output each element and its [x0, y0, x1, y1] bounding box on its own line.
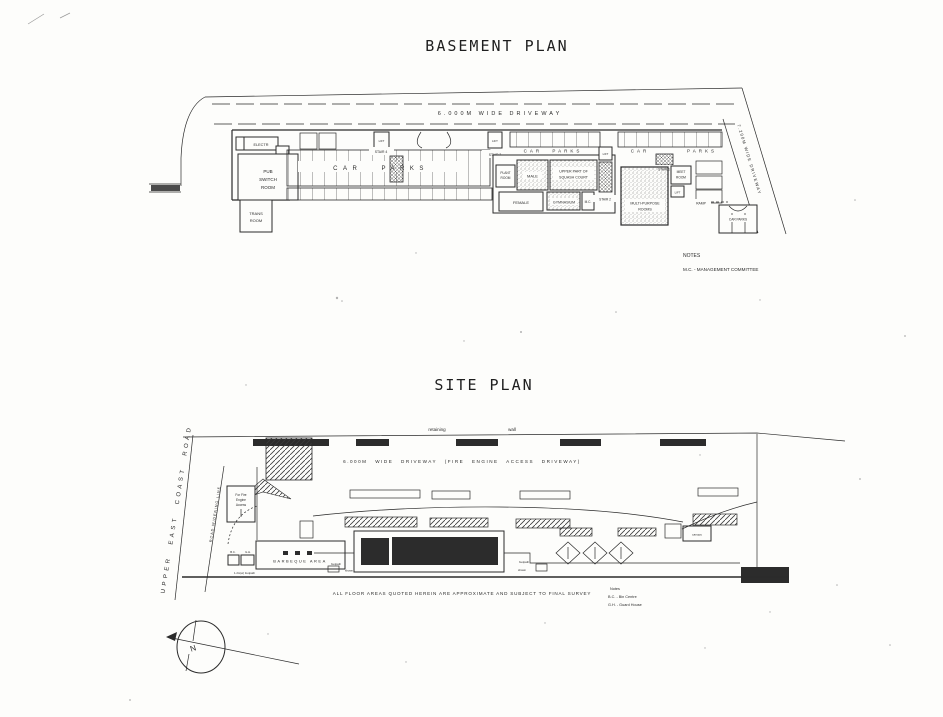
planter-marks [568, 547, 621, 559]
transformer-room-label-1: TRANS [249, 211, 263, 216]
stair-2-flight [599, 162, 612, 192]
retaining-label: retaining [428, 427, 446, 432]
lift-2-label: LIFT [603, 152, 609, 156]
small-structure [300, 521, 313, 538]
canopy-label: canopy [692, 533, 702, 537]
hatched-widening-strip [266, 438, 312, 480]
column-curves [417, 132, 451, 148]
site-plan-title: SITE PLAN [434, 376, 533, 394]
north-arrow-compass: N [166, 620, 299, 673]
wall-segment [456, 439, 498, 446]
driveway-boundary-line [205, 88, 742, 97]
compass-arrowhead-icon [166, 632, 177, 641]
small-structure [665, 524, 681, 538]
multi-purpose-label-1: MULTI-PURPOSE [630, 202, 660, 206]
stair-4-label: STAIR 4 [375, 150, 388, 154]
car-right-label: CAR [631, 149, 650, 154]
transformer-room [240, 200, 272, 232]
squash-court-label-2: SQUASH COURT [559, 176, 589, 180]
car-parks-left-label: CAR PARKS [333, 166, 429, 172]
compass-circle [177, 621, 225, 673]
barbeque-area-label: BARBEQUE AREA [273, 559, 327, 564]
guard-house-box [241, 555, 254, 565]
scanned-page: BASEMENT PLAN 6.000M WIDE DRIVEWAY 7.200… [0, 0, 943, 717]
shown-word: shown [345, 569, 354, 573]
mc-room-label: M.C. [585, 200, 592, 204]
survey-note: ALL FLOOR AREAS QUOTED HEREIN ARE APPROX… [333, 591, 592, 596]
stall-box [696, 176, 722, 189]
stair-4-flight [390, 156, 403, 182]
upper-stall-box [300, 133, 317, 149]
electrical-room-label: ELECTR [254, 143, 269, 147]
hatched-roof-strip [430, 518, 488, 527]
squash-court-label-1: UPPER PART OF [559, 170, 588, 174]
wall-segment [660, 439, 706, 446]
basement-plan-title: BASEMENT PLAN [425, 37, 568, 55]
car-parks-row-right [618, 132, 722, 147]
hatched-roof-strip [345, 517, 417, 527]
compass-north-label: N [189, 643, 197, 653]
female-room-label: FEMALE [513, 200, 529, 205]
wall-label: wall [508, 427, 516, 432]
architectural-drawing: BASEMENT PLAN 6.000M WIDE DRIVEWAY 7.200… [0, 0, 943, 717]
bin-centre-abbr: B.C. [230, 550, 236, 554]
shown-word: shown [518, 568, 527, 572]
site-driveway-label: 6.000M WIDE DRIVEWAY (FIRE ENGINE ACCESS… [343, 459, 581, 464]
transformer-room-label-2: ROOM [250, 218, 262, 223]
hatched-roof-strip [560, 528, 592, 536]
car-parks-mid-label: CAR PARKS [524, 149, 583, 154]
legend-bin-centre: B.C. - Bin Centre [608, 595, 637, 599]
multi-purpose-label-2: ROOMS [638, 208, 652, 212]
upper-block-outline [698, 488, 738, 496]
site-plan: SITE PLAN retaining wall 6.000M WIDE DRI… [161, 376, 845, 673]
compass-needle-line [167, 637, 299, 664]
upper-block-outline [520, 491, 570, 499]
boundary-wall-corner [741, 567, 789, 583]
lift-4-label: LIFT [379, 139, 385, 143]
basement-notes: NOTES M.C. - MANAGEMENT COMMITTEE [683, 253, 758, 272]
entrance-footpath-label: 1.2m(w) footpath [234, 571, 255, 575]
car-parks-row-mid [510, 132, 600, 147]
site-legend: Notes B.C. - Bin Centre G.H. - Guard Hou… [608, 587, 642, 607]
scan-scratch [28, 13, 70, 24]
legend-guard-house: G.H. - Guard House [608, 603, 642, 607]
fire-engine-label-2: Engine [236, 498, 246, 502]
plant-room-label-1: PLANT [500, 171, 510, 175]
legend-heading: Notes [610, 587, 620, 591]
small-duct-box [236, 137, 244, 150]
meeting-room-label-1: MEET [677, 170, 686, 174]
car-parks-row-lower [287, 188, 492, 200]
hatched-roof-strip [618, 528, 656, 536]
plant-room-label-2: ROOM [501, 176, 511, 180]
wall-segment [560, 439, 601, 446]
bbq-pit [295, 551, 300, 555]
pub-switch-room-label-1: PUB [263, 169, 272, 174]
basement-driveway-label: 6.000M WIDE DRIVEWAY [438, 111, 563, 117]
bin-centre-box [228, 555, 239, 565]
footpath-symbol [536, 564, 547, 571]
wall-segment [356, 439, 389, 446]
guard-house-abbr: G.H. [245, 550, 251, 554]
hatched-roof-strip [516, 519, 570, 528]
road-widening-label: ROAD WIDENING LINE [209, 486, 222, 543]
upper-stall-box [319, 133, 336, 149]
basement-structure: ELECTR LIFT PUB SWITCH ROOM TRANS ROOM C… [232, 130, 757, 233]
left-road-wall [151, 185, 180, 191]
bbq-pit [283, 551, 288, 555]
basement-plan: BASEMENT PLAN 6.000M WIDE DRIVEWAY 7.200… [149, 37, 786, 272]
road-edge: UPPER EAST COAST ROAD ROAD WIDENING LINE… [161, 424, 312, 600]
footpath-note-right: footpath shown [518, 560, 547, 572]
stair-2-label: STAIR 2 [599, 198, 611, 202]
side-driveway-label: 7.200M WIDE DRIVEWAY [736, 124, 762, 195]
gymnasium-label: GYMNASIUM [553, 201, 575, 205]
corner-car-parks-label: CAR PARKS [729, 218, 747, 222]
swimming-pool-small [361, 538, 389, 565]
swimming-pool-main [392, 537, 498, 565]
stall-box [696, 161, 722, 174]
road-name-label: UPPER EAST COAST ROAD [161, 424, 194, 593]
bbq-pit [307, 551, 312, 555]
meeting-room-label-2: ROOM [676, 176, 686, 180]
upper-block-outline [432, 491, 470, 499]
mc-definition: M.C. - MANAGEMENT COMMITTEE [683, 267, 758, 272]
notes-heading: NOTES [683, 253, 701, 259]
hatched-roof-strip [693, 514, 737, 525]
driveway-left-curve [181, 97, 205, 186]
ramp-label: RAMP [696, 202, 707, 206]
upper-block-outline [350, 490, 420, 498]
lift-3-label: LIFT [492, 139, 498, 143]
pub-switch-room-label-2: SWITCH [259, 177, 277, 182]
fire-engine-label-1: For Fire [235, 493, 246, 497]
parks-right-label: PARKS [687, 149, 717, 154]
footpath-word: footpath [519, 560, 530, 564]
lift-1-label: LIFT [675, 191, 681, 195]
pub-switch-room-label-3: ROOM [261, 185, 275, 190]
multi-purpose-rooms [621, 167, 668, 225]
footpath-word: footpath [331, 562, 342, 566]
fire-engine-label-3: Access [236, 503, 247, 507]
stair-1-flight [656, 154, 673, 165]
male-room-label: MALE [527, 174, 538, 179]
